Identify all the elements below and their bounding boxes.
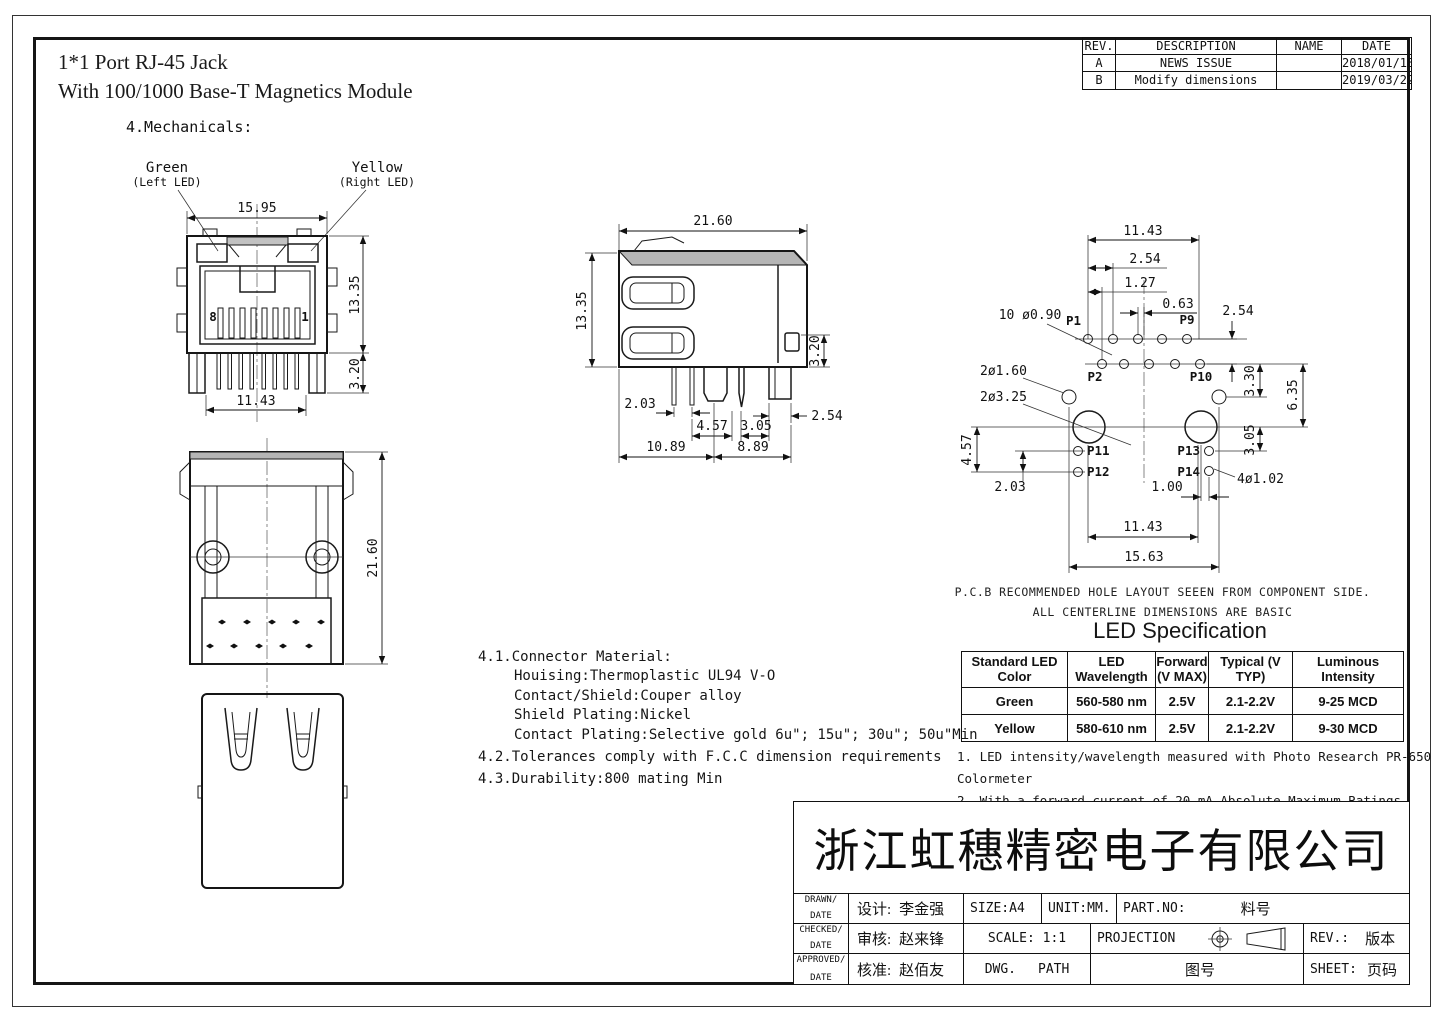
led-header-row: Standard LED Color LED Wavelength Forwar… xyxy=(962,652,1404,688)
pcb-caption-1: P.C.B RECOMMENDED HOLE LAYOUT SEEEN FROM… xyxy=(940,582,1385,602)
pcb-dim-row-offset: 1.27 xyxy=(1124,276,1155,291)
side-dim-height: 13.35 xyxy=(575,291,590,330)
yellow-luminous: 9-30 MCD xyxy=(1293,715,1404,742)
rev-b-date: 2019/03/22 xyxy=(1342,72,1411,89)
projection-symbols xyxy=(1205,924,1289,953)
unit-cell: UNIT:MM. xyxy=(1042,894,1117,923)
led-spec-title: LED Specification xyxy=(1030,618,1330,644)
pad-label-p12: P12 xyxy=(1087,464,1110,479)
side-dim-base-right: 8.89 xyxy=(737,440,768,455)
pad-label-p13: P13 xyxy=(1177,443,1200,458)
contact-1-label: 1 xyxy=(301,309,309,324)
revision-header-row: REV. DESCRIPTION NAME DATE xyxy=(1083,38,1411,55)
green-forward: 2.5V xyxy=(1156,688,1209,715)
note-4-3: 4.3.Durability:800 mating Min xyxy=(478,770,978,789)
led-col-color: Standard LED Color xyxy=(962,652,1068,688)
side-dim-base-left: 10.89 xyxy=(646,440,685,455)
checked-label: CHECKED/ xyxy=(799,926,842,935)
description-col-header: DESCRIPTION xyxy=(1116,38,1277,55)
company-name: 浙江虹穗精密电子有限公司 xyxy=(794,802,1409,894)
green-color: Green xyxy=(962,688,1068,715)
sheet-cell: SHEET: 页码 xyxy=(1304,954,1409,985)
led-col-wavelength: LED Wavelength xyxy=(1068,652,1156,688)
approved-date-label: DATE xyxy=(810,974,832,983)
date-col-header: DATE xyxy=(1342,38,1411,55)
pcb-dim-total-span: 15.63 xyxy=(1124,550,1163,565)
designer-cell: 设计: 李金强 xyxy=(849,894,964,923)
material-notes: 4.1.Connector Material: Houising:Thermop… xyxy=(478,648,978,790)
part-no-value: 料号 xyxy=(1241,898,1271,919)
pcb-dim-bottom-span: 11.43 xyxy=(1123,520,1162,535)
projection-label: PROJECTION xyxy=(1097,931,1175,946)
side-dim-depth: 21.60 xyxy=(693,214,732,229)
yellow-wavelength: 580-610 nm xyxy=(1068,715,1156,742)
sheet-label: SHEET: xyxy=(1310,962,1357,977)
side-dim-block: 2.54 xyxy=(811,409,842,424)
side-dim-tab: 3.20 xyxy=(808,335,823,366)
checked-date-cell: CHECKED/ DATE xyxy=(794,924,849,953)
pcb-dim-gnd-offset: 1.00 xyxy=(1151,480,1182,495)
yellow-typical: 2.1-2.2V xyxy=(1209,715,1293,742)
pad-label-p9: P9 xyxy=(1179,312,1194,327)
emi-clip-lower xyxy=(622,327,694,359)
top-view-pin-marks xyxy=(206,620,325,649)
yellow-led-label: Yellow xyxy=(352,160,403,176)
dwg-label: DWG. xyxy=(985,962,1016,977)
rev-cell: REV.: 版本 xyxy=(1304,924,1409,953)
pcb-callout-post-holes: 2ø3.25 xyxy=(980,390,1027,405)
first-angle-symbol-icon xyxy=(1205,924,1235,953)
latch-left xyxy=(225,708,257,770)
approver-name: 赵佰友 xyxy=(899,959,944,980)
side-dim-post-gap: 3.05 xyxy=(740,419,771,434)
title-block-row-checked: CHECKED/ DATE 审核: 赵来锋 SCALE: 1:1 PROJECT… xyxy=(794,924,1409,954)
yellow-led-sublabel: (Right LED) xyxy=(339,175,415,189)
side-dim-pin-span: 4.57 xyxy=(696,419,727,434)
size-cell: SIZE:A4 xyxy=(964,894,1042,923)
rev-a: A xyxy=(1083,55,1116,72)
green-wavelength: 560-580 nm xyxy=(1068,688,1156,715)
designer-name: 李金强 xyxy=(899,898,944,919)
rev-a-name xyxy=(1277,55,1342,72)
rev-b-description: Modify dimensions xyxy=(1116,72,1277,89)
pcb-callout-signal-holes: 10 ø0.90 xyxy=(999,308,1062,323)
checked-date-label: DATE xyxy=(810,942,832,951)
approver-cell: 核准: 赵佰友 xyxy=(849,954,964,985)
rev-label: REV.: xyxy=(1310,931,1349,946)
checker-name: 赵来锋 xyxy=(899,928,944,949)
rev-b: B xyxy=(1083,72,1116,89)
note-shield-plating: Shield Plating:Nickel xyxy=(478,706,978,725)
approved-label: APPROVED/ xyxy=(797,956,846,965)
document-title: 1*1 Port RJ-45 Jack With 100/1000 Base-T… xyxy=(58,48,413,106)
pcb-dim-post-row: 6.35 xyxy=(1286,379,1301,410)
pcb-dim-top-span: 11.43 xyxy=(1123,224,1162,239)
revision-table: REV. DESCRIPTION NAME DATE A NEWS ISSUE … xyxy=(1082,37,1412,90)
front-dim-pins: 11.43 xyxy=(236,394,275,409)
led-row-green: Green 560-580 nm 2.5V 2.1-2.2V 9-25 MCD xyxy=(962,688,1404,715)
note-contact-plating: Contact Plating:Selective gold 6u"; 15u"… xyxy=(478,726,978,745)
part-no-label: PART.NO: xyxy=(1123,901,1186,916)
note-4-1: 4.1.Connector Material: xyxy=(478,648,978,667)
green-typical: 2.1-2.2V xyxy=(1209,688,1293,715)
pad-label-p10: P10 xyxy=(1190,369,1213,384)
pcb-layout-drawing: 11.43 2.54 1.27 0.63 2.54 10 ø0.90 P1 P xyxy=(935,225,1347,583)
led-note-1: 1. LED intensity/wavelength measured wit… xyxy=(957,746,1445,790)
side-view-drawing: 21.60 13.35 3.20 xyxy=(572,193,892,487)
rev-col-header: REV. xyxy=(1083,38,1116,55)
title-block-row-approved: APPROVED/ DATE 核准: 赵佰友 DWG. PATH 图号 SHEE… xyxy=(794,954,1409,985)
drawn-date-label: DATE xyxy=(810,912,832,921)
dwg-path-cell: DWG. PATH xyxy=(964,954,1091,985)
led-spec-table: Standard LED Color LED Wavelength Forwar… xyxy=(961,651,1404,742)
drawn-label: DRAWN/ xyxy=(805,896,838,905)
pcb-callout-gnd-holes: 4ø1.02 xyxy=(1237,472,1284,487)
bottom-view-drawing xyxy=(150,688,442,906)
drawn-date-cell: DRAWN/ DATE xyxy=(794,894,849,923)
approver-label: 核准: xyxy=(857,959,891,980)
checker-label: 审核: xyxy=(857,928,891,949)
pad-label-p1: P1 xyxy=(1066,313,1081,328)
pcb-dim-pitch: 2.54 xyxy=(1129,252,1160,267)
pcb-dim-row-gap: 2.54 xyxy=(1222,304,1253,319)
rev-b-name xyxy=(1277,72,1342,89)
rev-value: 版本 xyxy=(1365,928,1395,949)
rev-a-description: NEWS ISSUE xyxy=(1116,55,1277,72)
pcb-dim-half-offset: 0.63 xyxy=(1162,297,1193,312)
approved-date-cell: APPROVED/ DATE xyxy=(794,954,849,985)
name-col-header: NAME xyxy=(1277,38,1342,55)
scale-cell: SCALE: 1:1 xyxy=(964,924,1091,953)
front-dim-leg: 3.20 xyxy=(348,358,363,389)
pcb-dim-gnd-gap: 2.03 xyxy=(994,480,1025,495)
front-view-drawing: Green (Left LED) Yellow (Right LED) 15.9… xyxy=(115,148,450,462)
checker-cell: 审核: 赵来锋 xyxy=(849,924,964,953)
led-col-typical: Typical (V TYP) xyxy=(1209,652,1293,688)
latch-right xyxy=(287,708,319,770)
title-block: 浙江虹穗精密电子有限公司 DRAWN/ DATE 设计: 李金强 SIZE:A4… xyxy=(793,801,1410,985)
front-dim-height: 13.35 xyxy=(348,275,363,314)
path-label: PATH xyxy=(1038,962,1069,977)
drawing-no-cell: 图号 xyxy=(1091,954,1304,985)
pcb-captions: P.C.B RECOMMENDED HOLE LAYOUT SEEEN FROM… xyxy=(940,582,1385,622)
yellow-forward: 2.5V xyxy=(1156,715,1209,742)
side-dim-pin-pitch: 2.03 xyxy=(624,397,655,412)
pcb-callout-led-holes: 2ø1.60 xyxy=(980,364,1027,379)
top-view-drawing: 21.60 xyxy=(150,432,442,708)
title-line-2: With 100/1000 Base-T Magnetics Module xyxy=(58,77,413,106)
drawing-sheet: 1*1 Port RJ-45 Jack With 100/1000 Base-T… xyxy=(0,0,1445,1021)
led-row-yellow: Yellow 580-610 nm 2.5V 2.1-2.2V 9-30 MCD xyxy=(962,715,1404,742)
front-pins xyxy=(217,353,299,389)
pcb-dim-post-gnd: 3.05 xyxy=(1243,424,1258,455)
pad-label-p11: P11 xyxy=(1087,443,1110,458)
drawing-no-value: 图号 xyxy=(1185,959,1215,980)
revision-row-b: B Modify dimensions 2019/03/22 xyxy=(1083,72,1411,89)
pad-label-p14: P14 xyxy=(1177,464,1200,479)
front-dim-width: 15.95 xyxy=(237,201,276,216)
green-led-sublabel: (Left LED) xyxy=(132,175,201,189)
contact-comb xyxy=(218,308,300,338)
projection-cell: PROJECTION xyxy=(1091,924,1304,953)
note-contact-shield: Contact/Shield:Couper alloy xyxy=(478,687,978,706)
pcb-dim-led-row: 3.30 xyxy=(1243,365,1258,396)
rev-a-date: 2018/01/18 xyxy=(1342,55,1411,72)
sheet-value: 页码 xyxy=(1367,959,1397,980)
title-line-1: 1*1 Port RJ-45 Jack xyxy=(58,48,413,77)
revision-row-a: A NEWS ISSUE 2018/01/18 xyxy=(1083,55,1411,72)
yellow-color: Yellow xyxy=(962,715,1068,742)
designer-label: 设计: xyxy=(857,898,891,919)
note-4-2: 4.2.Tolerances comply with F.C.C dimensi… xyxy=(478,748,978,767)
top-dim-length: 21.60 xyxy=(366,538,381,577)
pad-label-p2: P2 xyxy=(1087,369,1102,384)
mechanicals-heading: 4.Mechanicals: xyxy=(126,118,252,136)
green-led-label: Green xyxy=(146,160,188,176)
cone-projection-symbol-icon xyxy=(1245,926,1289,952)
pcb-dim-gnd-span: 4.57 xyxy=(960,434,975,465)
title-block-row-drawn: DRAWN/ DATE 设计: 李金强 SIZE:A4 UNIT:MM. PAR… xyxy=(794,894,1409,924)
emi-clip-upper xyxy=(622,277,694,309)
note-housing: Houising:Thermoplastic UL94 V-O xyxy=(478,667,978,686)
contact-8-label: 8 xyxy=(209,309,217,324)
green-luminous: 9-25 MCD xyxy=(1293,688,1404,715)
led-col-forward: Forward (V MAX) xyxy=(1156,652,1209,688)
led-col-luminous: Luminous Intensity xyxy=(1293,652,1404,688)
part-no-cell: PART.NO: 料号 xyxy=(1117,894,1409,923)
